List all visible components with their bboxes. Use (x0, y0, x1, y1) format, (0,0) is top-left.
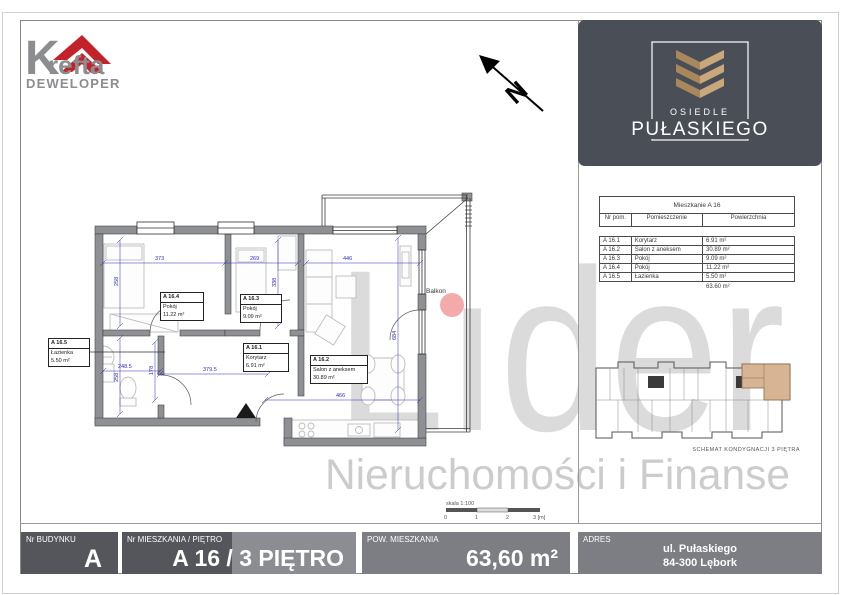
col-header-nr: Nr pom. (600, 214, 632, 226)
room-label-a163: A 16.3 Pokój 9.09 m² (240, 294, 282, 323)
table-row: A 16.2 Salon z aneksem 30.89 m² (600, 245, 794, 254)
table-row: A 16.4 Pokój 11.22 m² (600, 263, 794, 272)
address-line2: 84-300 Lębork (578, 556, 822, 570)
room-label-a162: A 16.2 Salon z aneksem 30.89 m² (310, 355, 368, 384)
estate-name-bottom: PUŁASKIEGO (631, 119, 769, 140)
developer-logo: K refta DEWELOPER (25, 20, 125, 92)
table-row: A 16.1 Korytarz 6.91 m² (600, 237, 794, 245)
table-row: A 16.5 Łazienka 5.50 m² (600, 272, 794, 281)
footer-cell-apartment: Nr MIESZKANIA / PIĘTRO A 16 / 3 PIĘTRO (122, 532, 356, 574)
table-title: Mieszkanie A 16 (600, 197, 794, 213)
room-label-a164: A 16.4 Pokój 11.22 m² (160, 292, 204, 321)
estate-name-top: OSIEDLE (670, 107, 730, 117)
room-label-a165: A 16.5 Łazienka 5.50 m² (48, 338, 90, 367)
room-label-a161: A 16.1 Korytarz 6.91 m² (243, 343, 289, 372)
footer-cell-area: POW. MIESZKANIA 63,60 m² (362, 532, 570, 574)
apartment-table: Mieszkanie A 16 Nr pom. Pomieszczenie Po… (599, 196, 795, 290)
table-total: 63.60 m² (599, 282, 795, 290)
table-row: A 16.3 Pokój 9.09 m² (600, 254, 794, 263)
footer-cell-building: Nr BUDYNKU A (21, 532, 118, 574)
address-line1: ul. Pułaskiego (578, 542, 822, 556)
footer-cell-address: ADRES ul. Pułaskiego 84-300 Lębork (578, 532, 822, 574)
offer-sheet: Lıder Nieruchomości i Finanse (0, 0, 842, 595)
developer-subtitle: DEWELOPER (26, 76, 121, 91)
schematic-caption: SCHEMAT KONDYGNACJI 3 PIĘTRA (640, 447, 800, 453)
balcony-label: Balkon (426, 288, 446, 295)
estate-monogram-icon (676, 50, 724, 98)
estate-logo-box: OSIEDLE PUŁASKIEGO (578, 20, 822, 166)
col-header-area: Powierzchnia (703, 214, 794, 226)
col-header-room: Pomieszczenie (632, 214, 703, 226)
